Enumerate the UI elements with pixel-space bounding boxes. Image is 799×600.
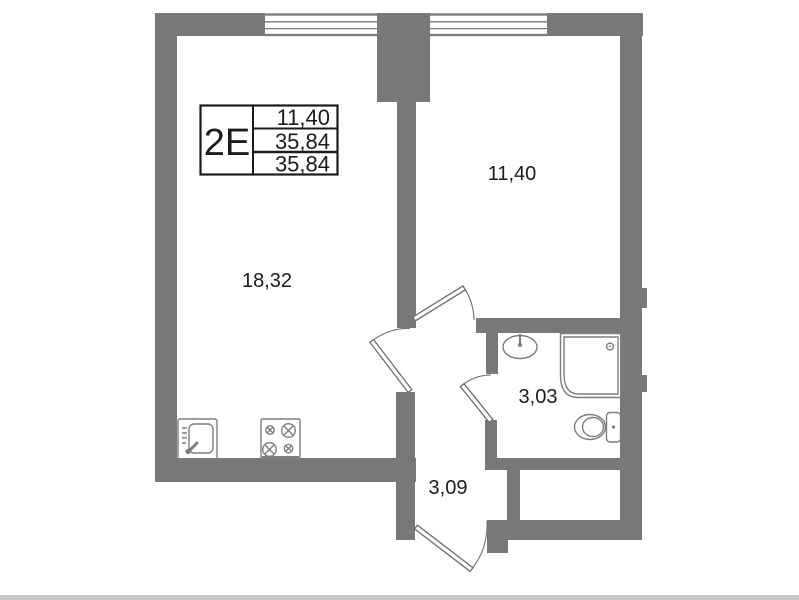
- floorplan-drawing: 2E 11,40 35,84 35,84 18,32 11,40 3,03 3,…: [0, 0, 799, 600]
- bathroom-door: [460, 375, 492, 422]
- floorplan-page: 2E 11,40 35,84 35,84 18,32 11,40 3,03 3,…: [0, 0, 799, 600]
- wall-partition-lower: [396, 392, 415, 540]
- image-bottom-edge: [0, 595, 799, 600]
- bedroom-door: [413, 286, 474, 321]
- hallway-area-label: 3,09: [429, 477, 468, 499]
- title-block: 2E 11,40 35,84 35,84: [201, 105, 338, 177]
- walls: [155, 13, 647, 553]
- wall-partition-upper: [397, 95, 416, 328]
- bathroom-area-label: 3,03: [519, 386, 558, 408]
- wall-bedroom-bathroom: [476, 318, 620, 333]
- wall-bottom: [487, 520, 642, 540]
- title-block-row-1: 11,40: [277, 105, 330, 130]
- wall-entrance-stub: [487, 540, 508, 553]
- wall-top-pier: [377, 13, 430, 102]
- title-block-row-2: 35,84: [275, 129, 330, 154]
- wall-closet-left: [507, 470, 520, 523]
- wall-right: [620, 13, 642, 540]
- living-kitchen-area-label: 18,32: [242, 270, 292, 292]
- washbasin-icon: [503, 334, 537, 359]
- wall-tick-lower: [642, 375, 647, 392]
- toilet-icon: [575, 413, 621, 443]
- living-room-door: [370, 328, 412, 392]
- entrance-door: [415, 521, 488, 571]
- window-living: [265, 15, 377, 36]
- wall-bathroom-left-upper: [486, 333, 498, 374]
- wall-bathroom-bottom: [485, 458, 620, 470]
- wall-left: [155, 13, 177, 482]
- bedroom-area-label: 11,40: [488, 163, 537, 185]
- title-block-row-3: 35,84: [275, 152, 330, 177]
- wall-living-bottom: [155, 458, 416, 482]
- cooktop-icon: [261, 419, 300, 460]
- unit-type-label: 2E: [204, 122, 250, 164]
- kitchen-sink-icon: [178, 419, 217, 459]
- window-bedroom: [430, 15, 547, 36]
- wall-tick-upper: [642, 288, 647, 308]
- wall-bathroom-left-lower: [485, 420, 497, 463]
- shower-cabin-icon: [561, 334, 622, 398]
